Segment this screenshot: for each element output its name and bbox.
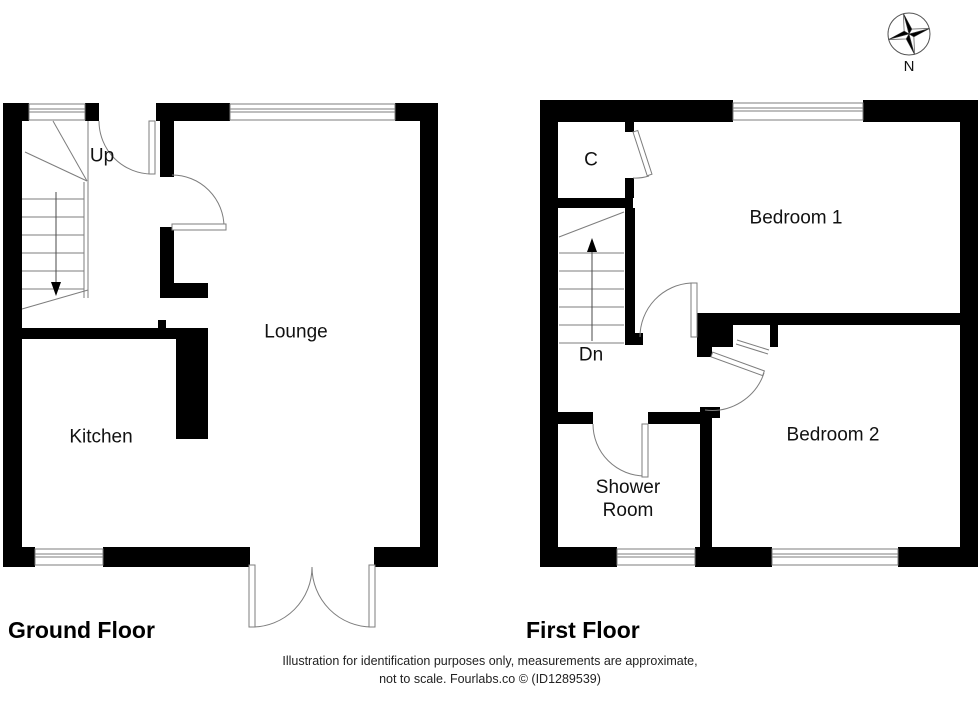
gf-french-doors xyxy=(249,565,375,627)
ground-floor-title: Ground Floor xyxy=(8,617,155,644)
ff-bedroom1-door xyxy=(640,283,697,337)
room-label-bedroom1: Bedroom 1 xyxy=(750,208,843,231)
ff-window-bedroom1 xyxy=(733,103,863,120)
disclaimer-line-2: not to scale. Fourlabs.co © (ID1289539) xyxy=(0,670,980,688)
gf-lounge-door xyxy=(172,175,226,230)
ff-bedroom2-door xyxy=(705,352,764,410)
room-label-shower-room: Shower Room xyxy=(582,477,674,523)
room-label-lounge: Lounge xyxy=(264,322,327,345)
ff-wall-recess-door xyxy=(736,340,769,354)
compass-north-label: N xyxy=(904,58,915,75)
floorplan-page: Up Lounge Kitchen C Bedroom 1 Dn Bedroom… xyxy=(0,0,980,708)
gf-window-kitchen xyxy=(35,549,103,565)
ff-window-shower xyxy=(617,549,695,565)
gf-window-hall xyxy=(29,104,85,120)
ground-floor-plan xyxy=(3,103,438,627)
floorplan-drawing xyxy=(0,0,980,708)
ff-shower-door xyxy=(593,424,648,477)
gf-stair-label: Up xyxy=(90,146,114,169)
room-label-cupboard: C xyxy=(584,150,598,173)
gf-window-lounge xyxy=(230,104,395,120)
gf-stairs xyxy=(22,121,88,309)
disclaimer-text: Illustration for identification purposes… xyxy=(0,652,980,688)
ff-cupboard-door xyxy=(633,130,652,178)
first-floor-title: First Floor xyxy=(526,617,640,644)
ff-stairs xyxy=(559,212,624,343)
ff-stair-label: Dn xyxy=(579,345,603,368)
disclaimer-line-1: Illustration for identification purposes… xyxy=(0,652,980,670)
ff-window-bedroom2 xyxy=(772,549,898,565)
room-label-kitchen: Kitchen xyxy=(69,427,132,450)
room-label-bedroom2: Bedroom 2 xyxy=(787,425,880,448)
compass-icon xyxy=(883,8,934,59)
